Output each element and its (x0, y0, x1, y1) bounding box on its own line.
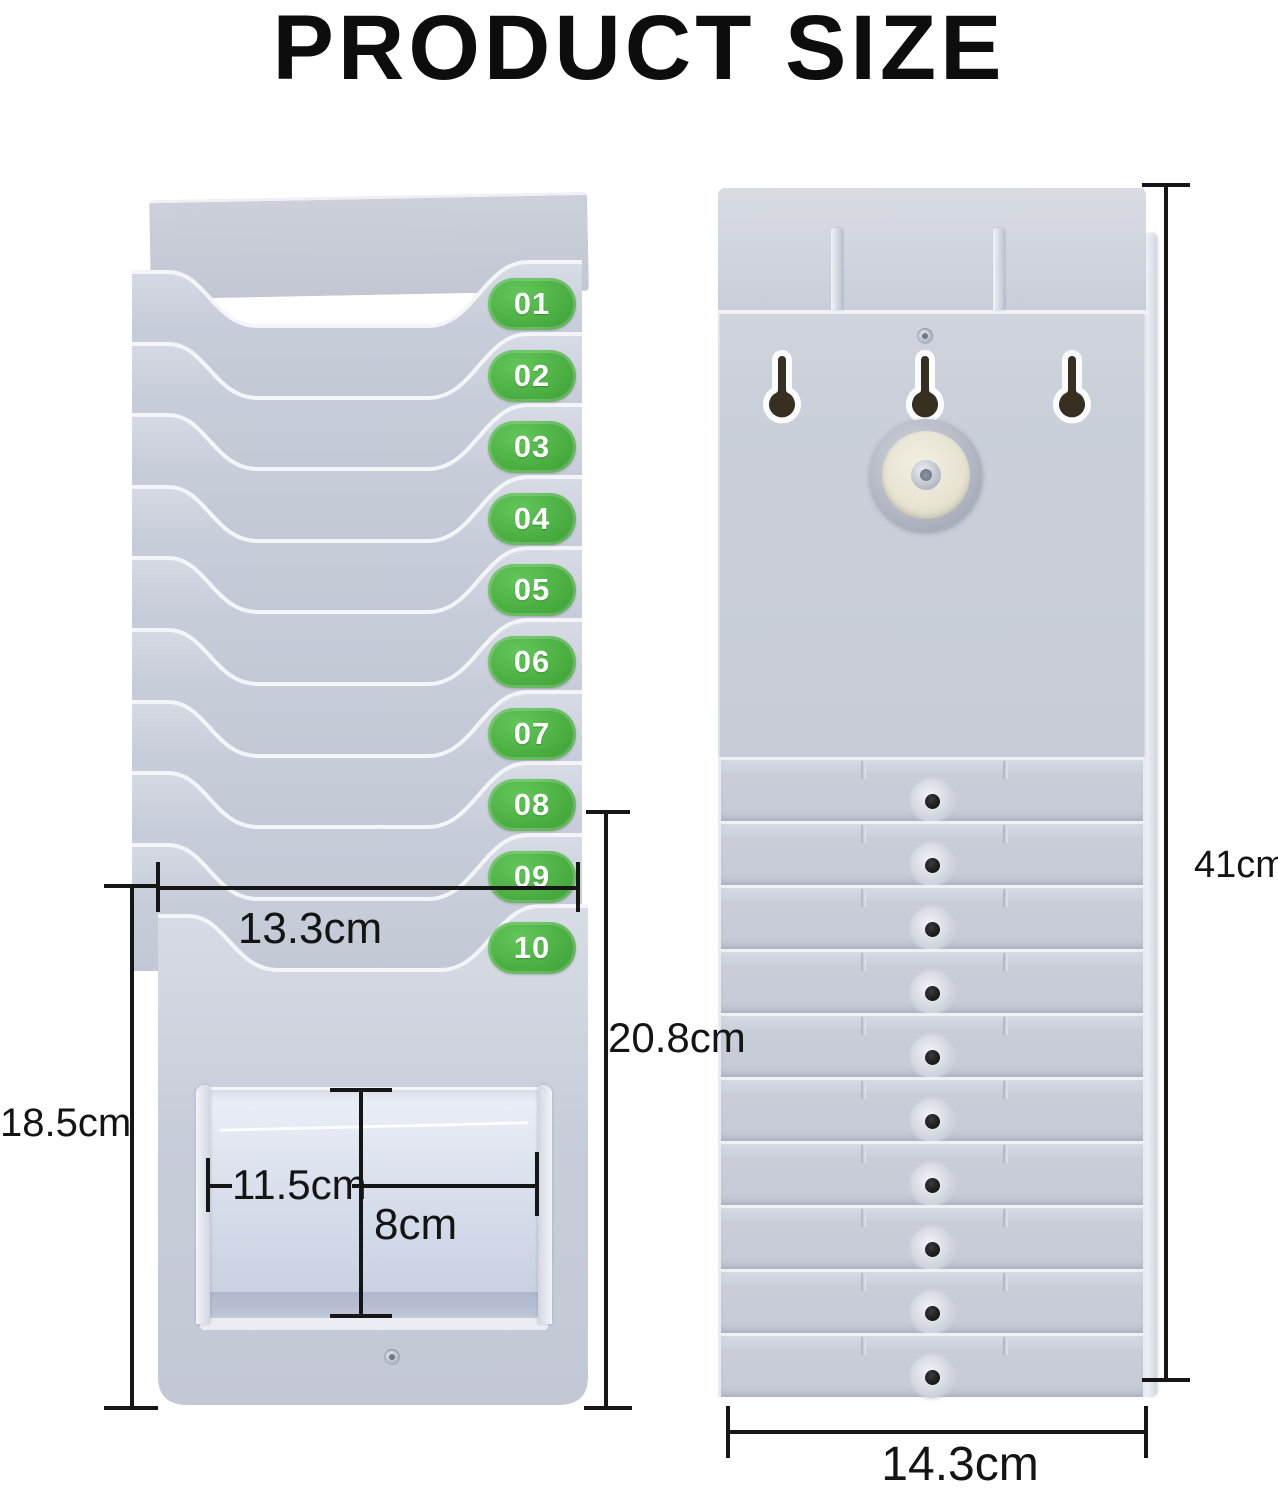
back-slat (718, 885, 1146, 949)
dim-tick (535, 1152, 539, 1216)
pocket-base-rail (200, 1318, 548, 1330)
slat-rivet (911, 1228, 953, 1270)
dim-label-card-section-height: 20.8cm (608, 1016, 746, 1060)
dim-tick (1142, 1378, 1190, 1382)
slot-number: 10 (514, 930, 550, 966)
back-slat (718, 1013, 1146, 1077)
slat-rivet (911, 780, 953, 822)
slot-number: 07 (514, 716, 550, 752)
front-screw-hole (384, 1349, 400, 1365)
dim-line (158, 886, 580, 890)
keyhole-mount (1050, 347, 1094, 425)
slat-rivet (911, 844, 953, 886)
slot-number-badge: 07 (488, 708, 576, 760)
dim-tick (1144, 1406, 1148, 1458)
dim-label-slot-width: 13.3cm (180, 906, 440, 952)
slot-number: 02 (514, 358, 550, 394)
compartment-divider (831, 228, 842, 310)
slat-notch (861, 1017, 866, 1035)
dim-tick (576, 862, 580, 912)
slot-number-badge: 04 (488, 493, 576, 545)
back-slat (718, 1141, 1146, 1205)
slat-notch (861, 1337, 866, 1355)
back-view-rack (718, 185, 1160, 1410)
front-view-rack: 01 02 03 04 05 06 07 08 09 10 (120, 190, 595, 1415)
dim-tick (586, 810, 630, 814)
back-screw (917, 328, 933, 344)
dim-tick (726, 1406, 730, 1458)
back-slat (718, 949, 1146, 1013)
back-slat (718, 821, 1146, 885)
dim-line (604, 812, 608, 1410)
slot-number: 08 (514, 787, 550, 823)
slat-notch (1003, 1145, 1008, 1163)
dim-line (352, 1184, 538, 1188)
back-slat-stack (718, 757, 1146, 1397)
slat-notch (1003, 761, 1008, 779)
lock-disc-face (882, 431, 970, 519)
keyhole-mount (903, 347, 947, 425)
slat-rivet (911, 1356, 953, 1398)
slat-notch (1003, 1273, 1008, 1291)
back-slat (718, 1205, 1146, 1269)
page-title: PRODUCT SIZE (0, 2, 1278, 94)
slat-rivet (911, 1036, 953, 1078)
dim-label-lower-height: 18.5cm (0, 1102, 124, 1144)
slat-notch (1003, 889, 1008, 907)
slot-number-badge: 09 (488, 851, 576, 903)
slat-notch (1003, 953, 1008, 971)
slat-notch (1003, 1017, 1008, 1035)
lock-center-screw (911, 460, 941, 490)
slat-rivet (911, 972, 953, 1014)
dim-tick (104, 884, 158, 888)
slat-notch (861, 1273, 866, 1291)
back-top-panel (718, 188, 1146, 760)
slot-number-badge: 05 (488, 564, 576, 616)
dim-line (359, 1090, 363, 1318)
top-compartment (718, 188, 1146, 314)
slat-notch (1003, 1081, 1008, 1099)
dim-label-pocket-width: 11.5cm (232, 1163, 367, 1207)
side-flange (1146, 233, 1157, 1397)
slot-number-badge: 01 (488, 278, 576, 330)
slat-notch (861, 1081, 866, 1099)
slot-number: 03 (514, 429, 550, 465)
dim-tick (1142, 183, 1190, 187)
slat-notch (861, 953, 866, 971)
dim-line (728, 1430, 1148, 1434)
slat-notch (861, 1209, 866, 1227)
pocket-right-rail (538, 1085, 552, 1324)
slot-number: 01 (514, 286, 550, 322)
dim-tick (330, 1088, 392, 1092)
slot-number: 06 (514, 644, 550, 680)
slat-notch (861, 761, 866, 779)
slat-notch (1003, 1337, 1008, 1355)
dim-line (1164, 184, 1168, 1382)
slot-number-badge: 03 (488, 421, 576, 473)
slot-number: 05 (514, 572, 550, 608)
slat-notch (861, 825, 866, 843)
dim-tick (104, 1406, 158, 1410)
slat-notch (1003, 825, 1008, 843)
dim-line (130, 886, 134, 1410)
compartment-divider (993, 228, 1004, 310)
product-size-diagram: PRODUCT SIZE (0, 0, 1278, 1500)
slat-rivet (911, 908, 953, 950)
keyhole-mount (760, 347, 804, 425)
back-slat (718, 757, 1146, 821)
dim-label-total-height: 41cm (1194, 846, 1278, 886)
dim-tick (584, 1406, 632, 1410)
dim-tick (330, 1314, 392, 1318)
slat-notch (1003, 1209, 1008, 1227)
slot-number-badge: 10 (488, 922, 576, 974)
dim-label-pocket-height: 8cm (374, 1202, 457, 1248)
slat-rivet (911, 1100, 953, 1142)
slat-notch (861, 889, 866, 907)
slat-rivet (911, 1164, 953, 1206)
slat-rivet (911, 1292, 953, 1334)
slot-number: 04 (514, 501, 550, 537)
slat-notch (861, 1145, 866, 1163)
back-slat (718, 1269, 1146, 1333)
dim-line (208, 1184, 232, 1188)
back-slat (718, 1077, 1146, 1141)
dim-tick (206, 1158, 210, 1212)
slot-number-badge: 06 (488, 636, 576, 688)
slot-number-badge: 02 (488, 350, 576, 402)
slot-number-badge: 08 (488, 779, 576, 831)
pocket-bottom-band (208, 1292, 540, 1316)
back-slat (718, 1333, 1146, 1397)
lock-disc (870, 419, 982, 531)
dim-label-overall-width: 14.3cm (840, 1440, 1080, 1490)
